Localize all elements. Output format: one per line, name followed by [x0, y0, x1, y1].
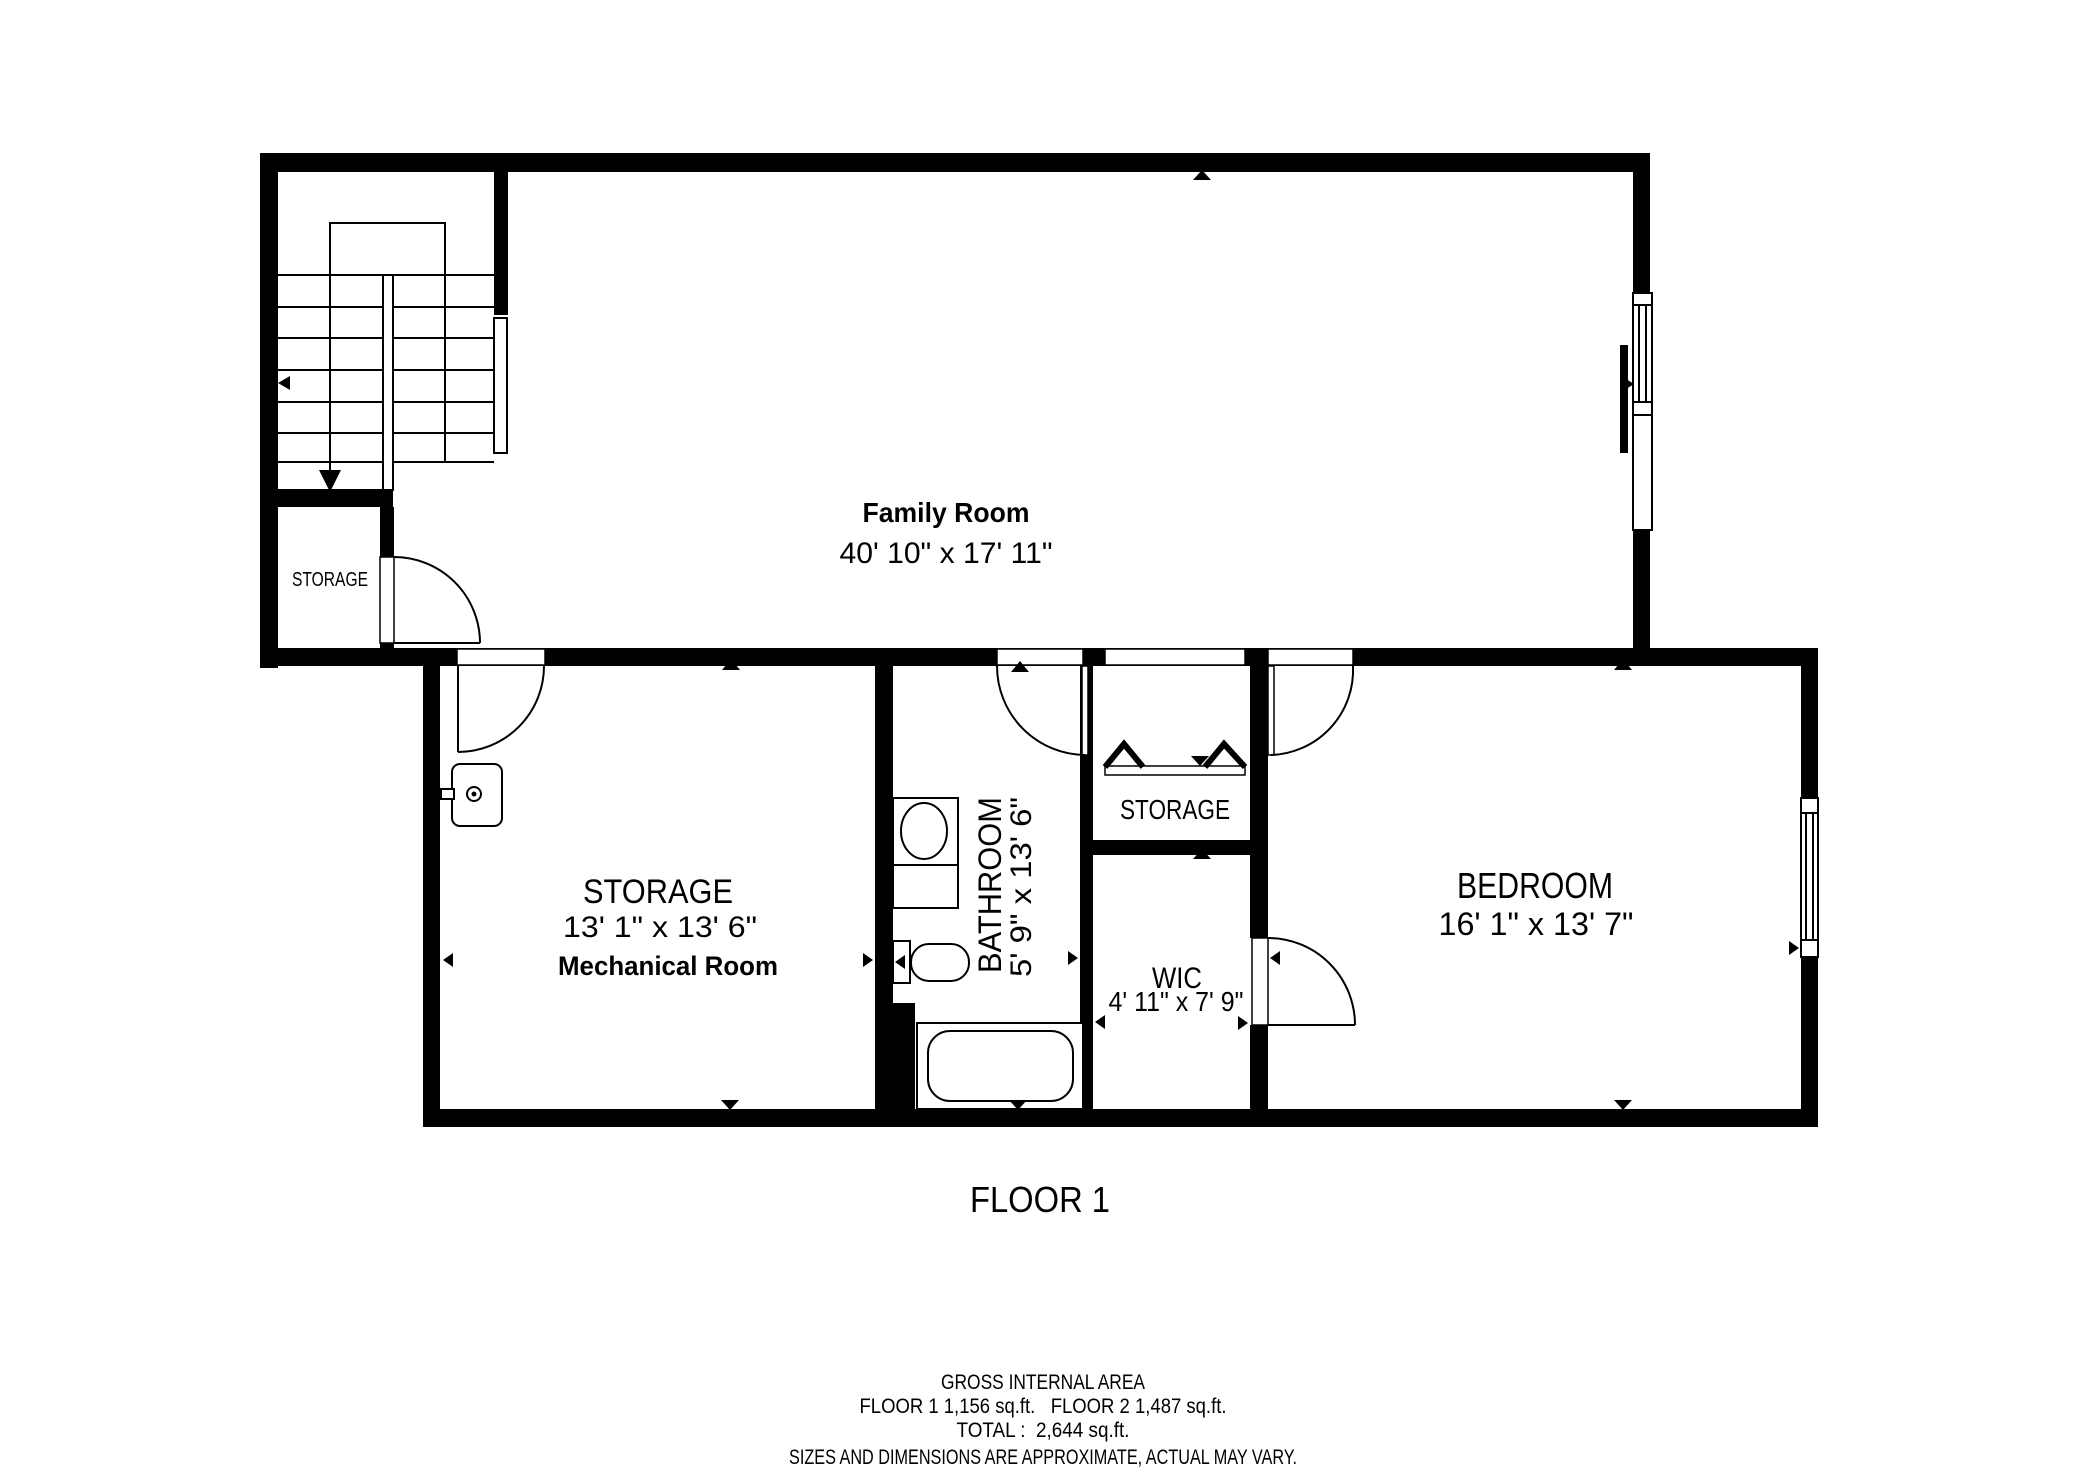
wall-top	[260, 153, 1650, 172]
vanity-counter	[893, 798, 958, 908]
bathroom-label: BATHROOM	[972, 797, 1008, 973]
marker-bedroom-left	[1270, 951, 1280, 965]
bifold-track	[1105, 766, 1245, 775]
marker-bedroom-right	[1789, 941, 1799, 955]
door-leaf	[1082, 666, 1088, 755]
water-heater-tab	[441, 789, 454, 799]
family-room-label: Family Room	[863, 497, 1030, 528]
bedroom-door	[1268, 666, 1353, 755]
bedroom-door-opening	[1268, 649, 1353, 665]
marker-left-wall	[278, 376, 290, 390]
wall-left-upper	[260, 153, 278, 668]
bedroom-window	[1801, 798, 1818, 957]
wall-bath-stub	[893, 1003, 915, 1109]
marker-wic-left	[1095, 1015, 1105, 1029]
bifold-panel	[1205, 744, 1245, 767]
family-room-window	[1620, 293, 1652, 530]
door-swing-arc	[458, 666, 544, 752]
water-heater-body	[452, 764, 502, 826]
footer: GROSS INTERNAL AREA FLOOR 1 1,156 sq.ft.…	[789, 1371, 1297, 1469]
marker-wic-right	[1238, 1016, 1248, 1030]
wall-right-family-upper	[1633, 153, 1650, 293]
wic-door	[1268, 938, 1355, 1025]
bedroom-dims: 16' 1" x 13' 7"	[1439, 906, 1634, 942]
wall-closet-bedroom-upper	[1250, 666, 1268, 938]
mechanical-door-opening	[457, 649, 545, 665]
bathtub	[917, 1023, 1083, 1109]
wall-storage-stairs-right-a	[380, 507, 394, 557]
bathroom-vanity	[893, 798, 958, 908]
mechanical-room-label: STORAGE	[583, 873, 733, 911]
closet-opening	[1105, 649, 1245, 665]
bedroom-label: BEDROOM	[1457, 865, 1613, 906]
storage-under-stairs-label: STORAGE	[292, 569, 368, 591]
water-heater	[441, 764, 502, 826]
mechanical-room-dims: 13' 1" x 13' 6"	[563, 911, 757, 944]
marker-mech-left	[443, 953, 453, 967]
family-room-dims: 40' 10" x 17' 11"	[840, 537, 1053, 570]
bathroom-door	[997, 666, 1088, 755]
wall-openings	[380, 557, 1353, 1025]
staircase	[278, 223, 507, 492]
wall-mech-bath	[875, 666, 893, 1109]
wall-storage-stairs-right-b	[380, 643, 394, 649]
marker-bedroom-bottom	[1614, 1100, 1632, 1110]
window-frame	[1801, 798, 1818, 957]
door-swing-arc	[997, 666, 1085, 755]
toilet-bowl	[911, 944, 969, 981]
wall-right-bedroom-lower	[1801, 957, 1818, 1127]
bifold-panel	[1105, 744, 1143, 767]
bathroom-dims: 5' 9" x 13' 6"	[1005, 797, 1038, 977]
bathroom-door-opening	[997, 649, 1083, 665]
floor-title: FLOOR 1	[970, 1179, 1110, 1220]
stair-landing	[330, 223, 445, 275]
door-swing-arc	[1271, 666, 1353, 755]
sliding-panel	[1620, 345, 1628, 453]
walls	[260, 153, 1818, 1127]
doors	[394, 557, 1355, 1025]
door-swing-arc	[394, 557, 480, 643]
stair-handrail	[494, 318, 507, 453]
floor-plan: Family Room 40' 10" x 17' 11" STORAGE ST…	[0, 0, 2080, 1470]
footer-disclaimer: SIZES AND DIMENSIONS ARE APPROXIMATE, AC…	[789, 1446, 1297, 1469]
water-heater-dial-dot	[472, 792, 477, 797]
wall-right-family-lower	[1633, 530, 1650, 666]
wall-stair-side	[494, 172, 508, 315]
stair-down-arrow	[319, 470, 341, 492]
wall-left-lower	[423, 648, 440, 1127]
footer-floor-areas: FLOOR 1 1,156 sq.ft. FLOOR 2 1,487 sq.ft…	[860, 1395, 1227, 1418]
wall-bottom	[423, 1109, 1818, 1127]
footer-total-area: TOTAL : 2,644 sq.ft.	[957, 1419, 1130, 1442]
door-swing-arc	[1268, 938, 1355, 1025]
storage-stairs-door-opening	[380, 557, 394, 643]
room-labels: Family Room 40' 10" x 17' 11" STORAGE ST…	[292, 497, 1634, 1017]
wall-storage-stairs-top	[260, 490, 393, 507]
footer-gross-area: GROSS INTERNAL AREA	[941, 1371, 1145, 1394]
closet-label: STORAGE	[1120, 794, 1230, 825]
mechanical-door	[458, 666, 544, 752]
marker-mech-bottom	[721, 1100, 739, 1110]
door-leaf	[1268, 666, 1274, 755]
wall-closet-bedroom-lower	[1250, 1025, 1268, 1109]
mechanical-room-subtitle: Mechanical Room	[558, 951, 778, 981]
window-frame	[1633, 293, 1652, 530]
marker-mech-right	[863, 953, 873, 967]
closet-bifold-doors	[1105, 744, 1245, 775]
wall-closet-wic-divider	[1093, 840, 1250, 855]
storage-stairs-door	[394, 557, 480, 643]
wic-door-opening	[1252, 938, 1268, 1025]
bathtub-inner	[928, 1031, 1073, 1101]
stair-center-rail	[383, 275, 393, 490]
wall-right-bedroom-upper	[1801, 648, 1818, 798]
marker-bath-right	[1068, 951, 1078, 965]
wic-dims: 4' 11" x 7' 9"	[1109, 986, 1244, 1017]
